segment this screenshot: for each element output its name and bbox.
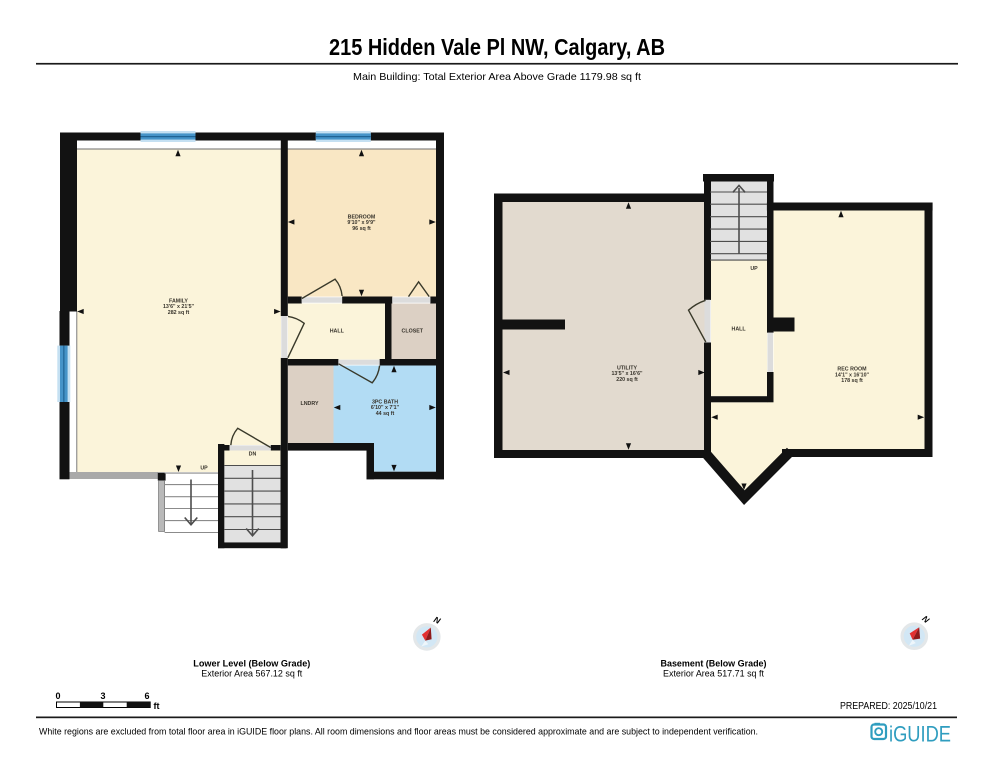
svg-text:HALL: HALL <box>732 327 747 333</box>
svg-text:DN: DN <box>249 451 257 457</box>
svg-text:iGUIDE: iGUIDE <box>889 722 951 747</box>
svg-text:96 sq ft: 96 sq ft <box>352 226 371 232</box>
svg-text:Exterior Area 517.71 sq ft: Exterior Area 517.71 sq ft <box>663 669 764 679</box>
svg-text:220 sq ft: 220 sq ft <box>616 377 638 383</box>
svg-text:CLOSET: CLOSET <box>402 328 424 334</box>
svg-text:White regions are excluded fro: White regions are excluded from total fl… <box>39 726 758 736</box>
svg-text:0: 0 <box>55 691 60 701</box>
svg-text:3: 3 <box>100 691 105 701</box>
svg-text:178 sq ft: 178 sq ft <box>841 378 863 384</box>
svg-text:Main Building: Total Exterior: Main Building: Total Exterior Area Above… <box>353 72 641 83</box>
svg-text:LNDRY: LNDRY <box>300 401 319 407</box>
svg-text:HALL: HALL <box>330 328 345 334</box>
svg-text:Lower Level (Below Grade): Lower Level (Below Grade) <box>193 659 310 669</box>
svg-text:PREPARED: 2025/10/21: PREPARED: 2025/10/21 <box>840 701 937 712</box>
svg-text:ft: ft <box>154 701 160 711</box>
svg-text:282 sq ft: 282 sq ft <box>168 310 190 316</box>
svg-text:UP: UP <box>750 266 758 272</box>
svg-text:Exterior Area 567.12 sq ft: Exterior Area 567.12 sq ft <box>201 669 302 679</box>
svg-text:Basement (Below Grade): Basement (Below Grade) <box>661 659 767 669</box>
svg-text:215 Hidden Vale Pl NW, Calgary: 215 Hidden Vale Pl NW, Calgary, AB <box>329 34 665 60</box>
svg-text:UP: UP <box>200 465 208 471</box>
svg-text:6: 6 <box>144 691 149 701</box>
svg-text:44 sq ft: 44 sq ft <box>376 411 395 417</box>
